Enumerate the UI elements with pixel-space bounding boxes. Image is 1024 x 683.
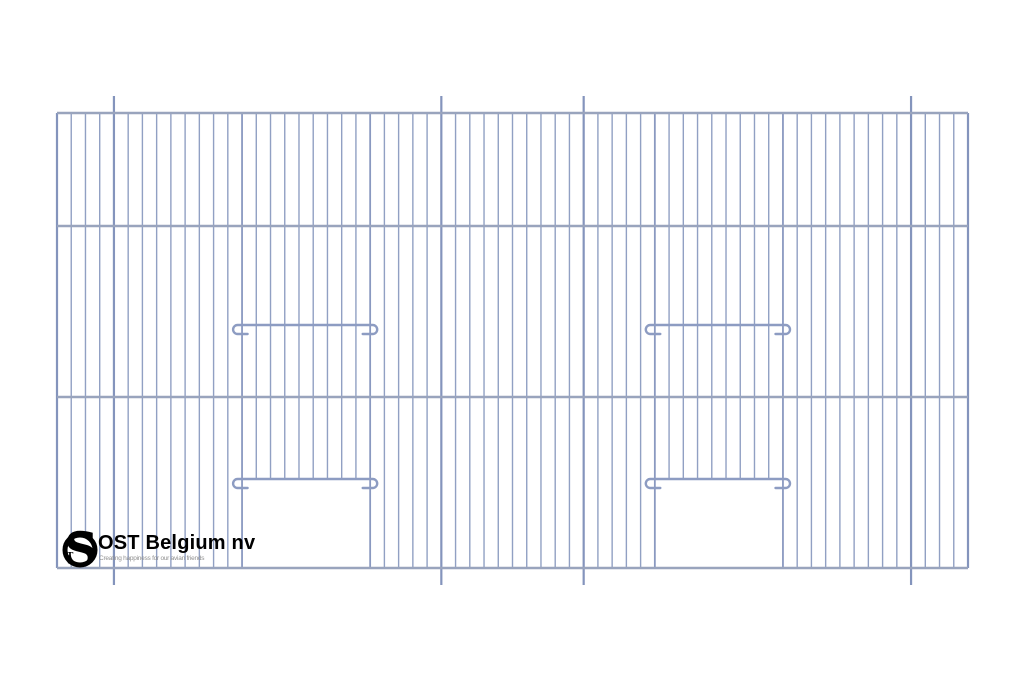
door-top-bar-right <box>646 479 790 488</box>
ost-monogram-icon: T S <box>59 527 103 573</box>
cage-front-panel-drawing <box>0 0 1024 683</box>
door-top-bar-left <box>233 479 377 488</box>
product-image: T S OST Belgium nv Creating happiness fo… <box>0 0 1024 683</box>
monogram-letter: S <box>64 522 97 576</box>
brand-tagline: Creating happiness for our avian friends <box>99 555 204 563</box>
brand-logo: T S OST Belgium nv Creating happiness fo… <box>59 527 319 577</box>
brand-name: OST Belgium nv <box>98 533 255 553</box>
